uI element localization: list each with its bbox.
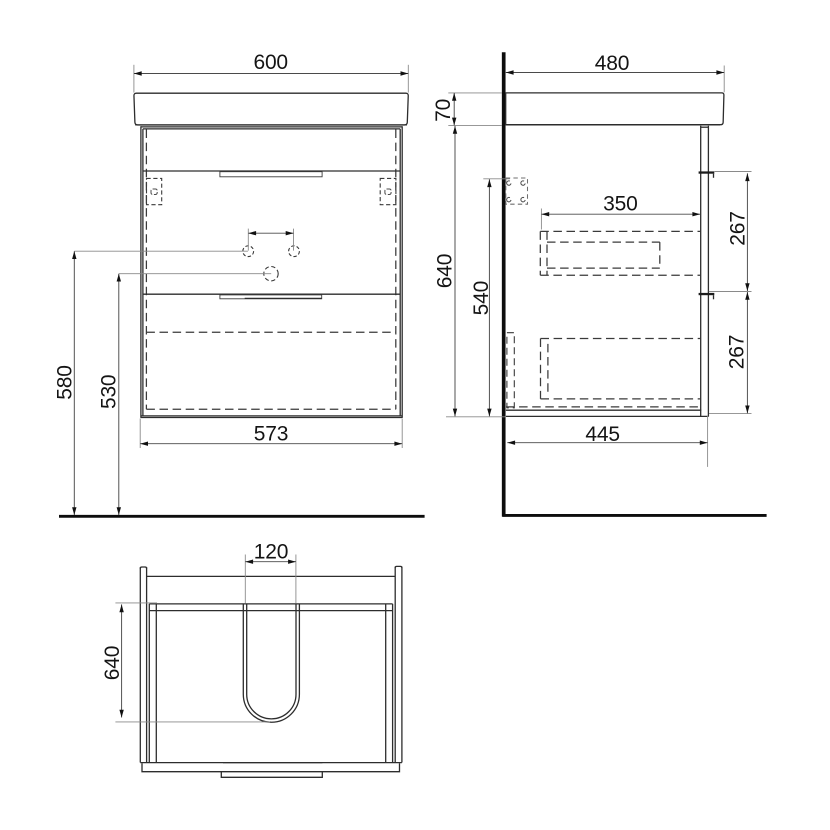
svg-text:530: 530	[98, 375, 121, 409]
svg-text:580: 580	[54, 365, 77, 399]
svg-text:70: 70	[432, 99, 455, 122]
svg-text:267: 267	[726, 211, 749, 245]
svg-text:350: 350	[603, 193, 637, 216]
svg-text:540: 540	[470, 281, 493, 315]
svg-text:600: 600	[253, 51, 287, 74]
svg-text:120: 120	[254, 540, 288, 563]
svg-text:573: 573	[254, 423, 288, 446]
svg-text:480: 480	[595, 52, 629, 75]
svg-text:445: 445	[585, 423, 619, 446]
svg-text:640: 640	[101, 646, 124, 680]
svg-text:640: 640	[434, 254, 457, 288]
svg-text:267: 267	[725, 335, 748, 369]
